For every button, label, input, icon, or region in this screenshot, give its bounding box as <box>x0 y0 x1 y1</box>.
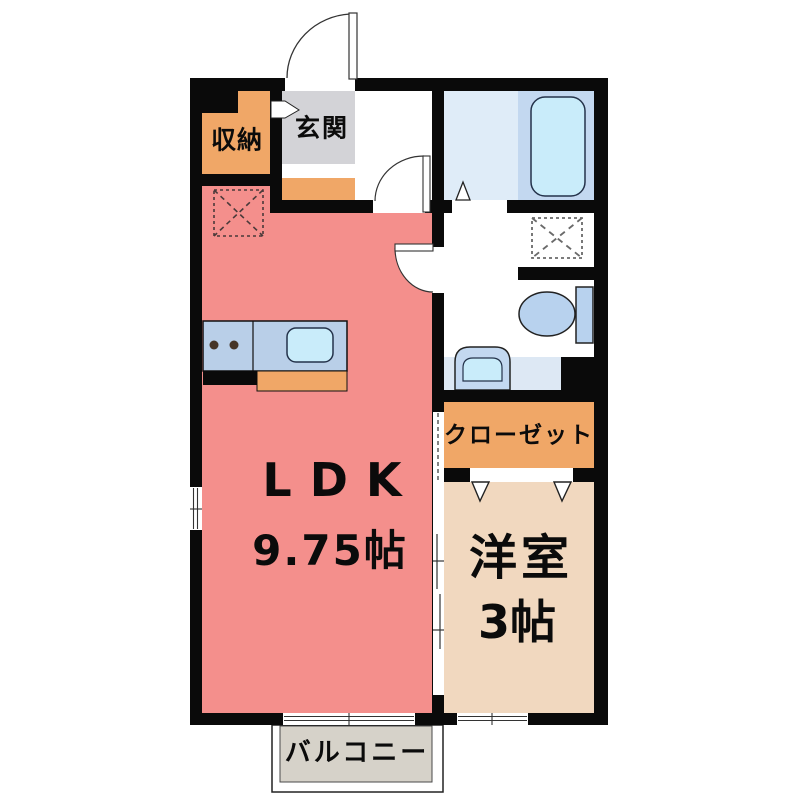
window-western-south <box>457 713 528 725</box>
western-room-label: 洋室 <box>465 534 573 582</box>
burner-icon <box>210 341 219 350</box>
entrance-door <box>287 13 357 79</box>
entrance-step <box>282 178 355 200</box>
window-ldk-south <box>283 713 415 725</box>
entrance-label: 玄関 <box>295 116 349 141</box>
entrance-step-gap <box>282 164 355 178</box>
balcony-label: バルコニー <box>285 740 429 766</box>
bathtub <box>531 97 585 196</box>
floorplan-drawing <box>0 0 800 800</box>
burner-icon <box>230 341 239 350</box>
ldk-label: LDK <box>244 457 419 503</box>
kitchen-counter <box>203 321 347 371</box>
room-bathroom <box>444 90 518 200</box>
hallway <box>355 90 432 200</box>
window-ldk-west <box>190 487 202 530</box>
kitchen-sink <box>287 328 333 362</box>
western-room-size-label: 3帖 <box>478 599 556 645</box>
washbasin <box>455 347 510 390</box>
kitchen-step <box>257 371 347 391</box>
floorplan-canvas: 収納 玄関 LDK 9.75帖 クローゼット 洋室 3帖 バルコニー <box>0 0 800 800</box>
storage-label: 収納 <box>211 128 263 153</box>
closet-label: クローゼット <box>444 425 594 448</box>
ldk-size-label: 9.75帖 <box>252 530 408 572</box>
